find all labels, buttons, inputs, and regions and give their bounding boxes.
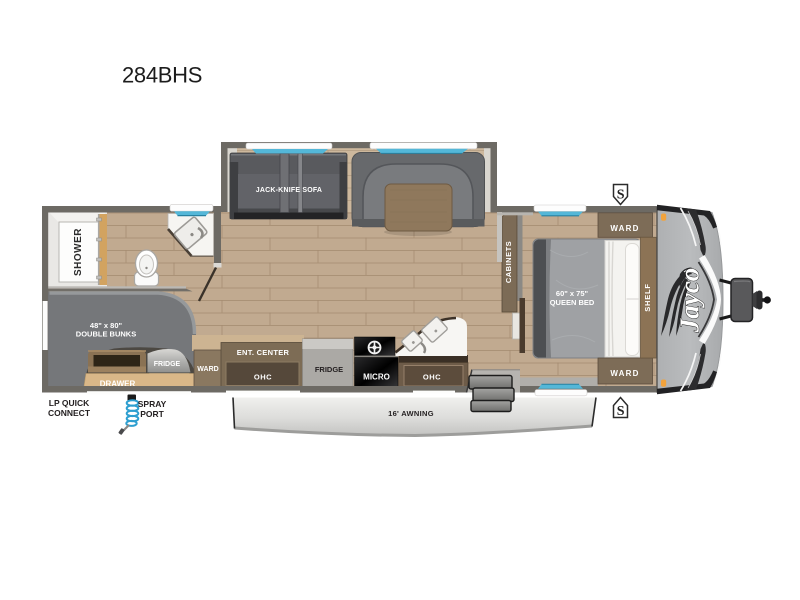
svg-text:60" x 75": 60" x 75" xyxy=(556,289,589,298)
svg-text:FRIDGE: FRIDGE xyxy=(154,361,181,368)
svg-text:ENT. CENTER: ENT. CENTER xyxy=(237,348,290,357)
svg-text:JACK-KNIFE SOFA: JACK-KNIFE SOFA xyxy=(256,187,322,194)
svg-text:SPRAY: SPRAY xyxy=(138,399,167,409)
svg-text:LP QUICK: LP QUICK xyxy=(49,398,90,408)
svg-text:16' AWNING: 16' AWNING xyxy=(388,409,434,418)
svg-text:OHC: OHC xyxy=(423,373,441,382)
svg-text:PORT: PORT xyxy=(140,409,164,419)
svg-text:DOUBLE BUNKS: DOUBLE BUNKS xyxy=(76,330,136,339)
svg-text:FRIDGE: FRIDGE xyxy=(315,365,343,374)
svg-text:OHC: OHC xyxy=(254,373,272,382)
svg-text:CABINETS: CABINETS xyxy=(504,241,513,283)
svg-text:SHOWER: SHOWER xyxy=(73,228,84,276)
svg-text:WARD: WARD xyxy=(197,366,218,373)
svg-text:MICRO: MICRO xyxy=(363,373,390,382)
svg-text:QUEEN BED: QUEEN BED xyxy=(550,298,595,307)
svg-text:S: S xyxy=(617,404,625,419)
svg-text:WARD: WARD xyxy=(610,369,639,378)
svg-text:Jayco: Jayco xyxy=(675,268,705,333)
svg-text:284BHS: 284BHS xyxy=(122,63,202,88)
svg-text:S: S xyxy=(617,188,625,203)
svg-text:SHELF: SHELF xyxy=(643,283,652,312)
svg-text:CONNECT: CONNECT xyxy=(48,408,91,418)
svg-text:WARD: WARD xyxy=(610,224,639,233)
